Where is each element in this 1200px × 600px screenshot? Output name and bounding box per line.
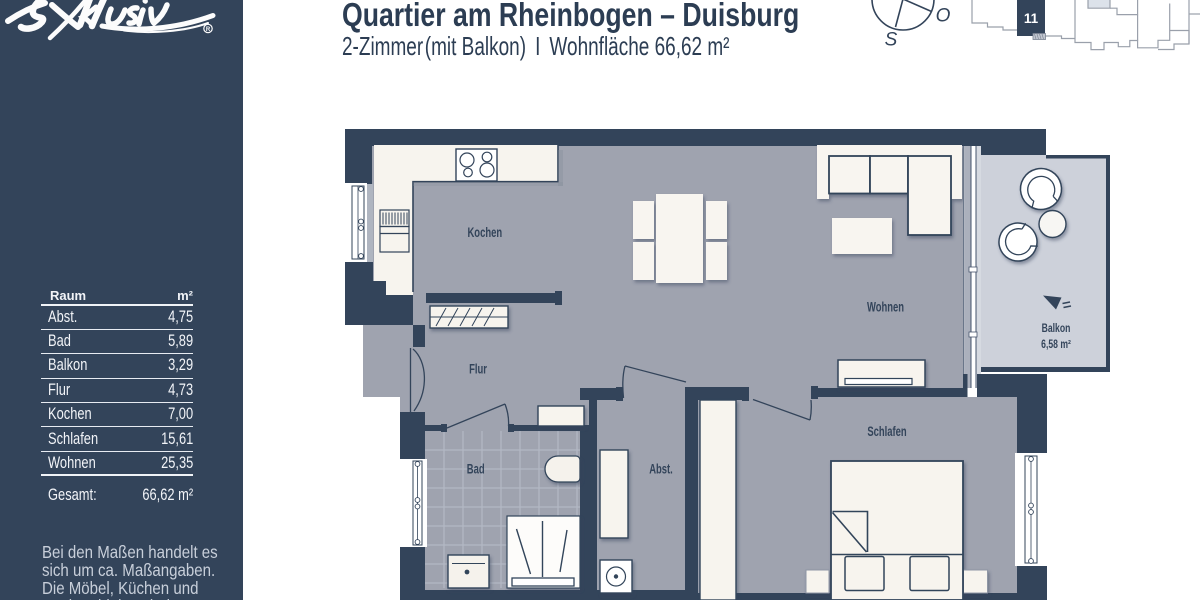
svg-text:O: O: [936, 6, 951, 27]
svg-text:Kochen: Kochen: [467, 226, 502, 241]
svg-text:S: S: [885, 30, 898, 51]
svg-text:Wohnen: Wohnen: [867, 300, 904, 315]
svg-text:Schlafen: Schlafen: [867, 424, 906, 439]
svg-text:Abst.: Abst.: [649, 462, 673, 477]
svg-text:11: 11: [1024, 11, 1039, 26]
svg-text:6,58 m²: 6,58 m²: [1041, 339, 1071, 351]
svg-text:Balkon: Balkon: [1042, 323, 1071, 335]
svg-text:Bad: Bad: [467, 462, 485, 477]
svg-text:Flur: Flur: [469, 362, 487, 377]
